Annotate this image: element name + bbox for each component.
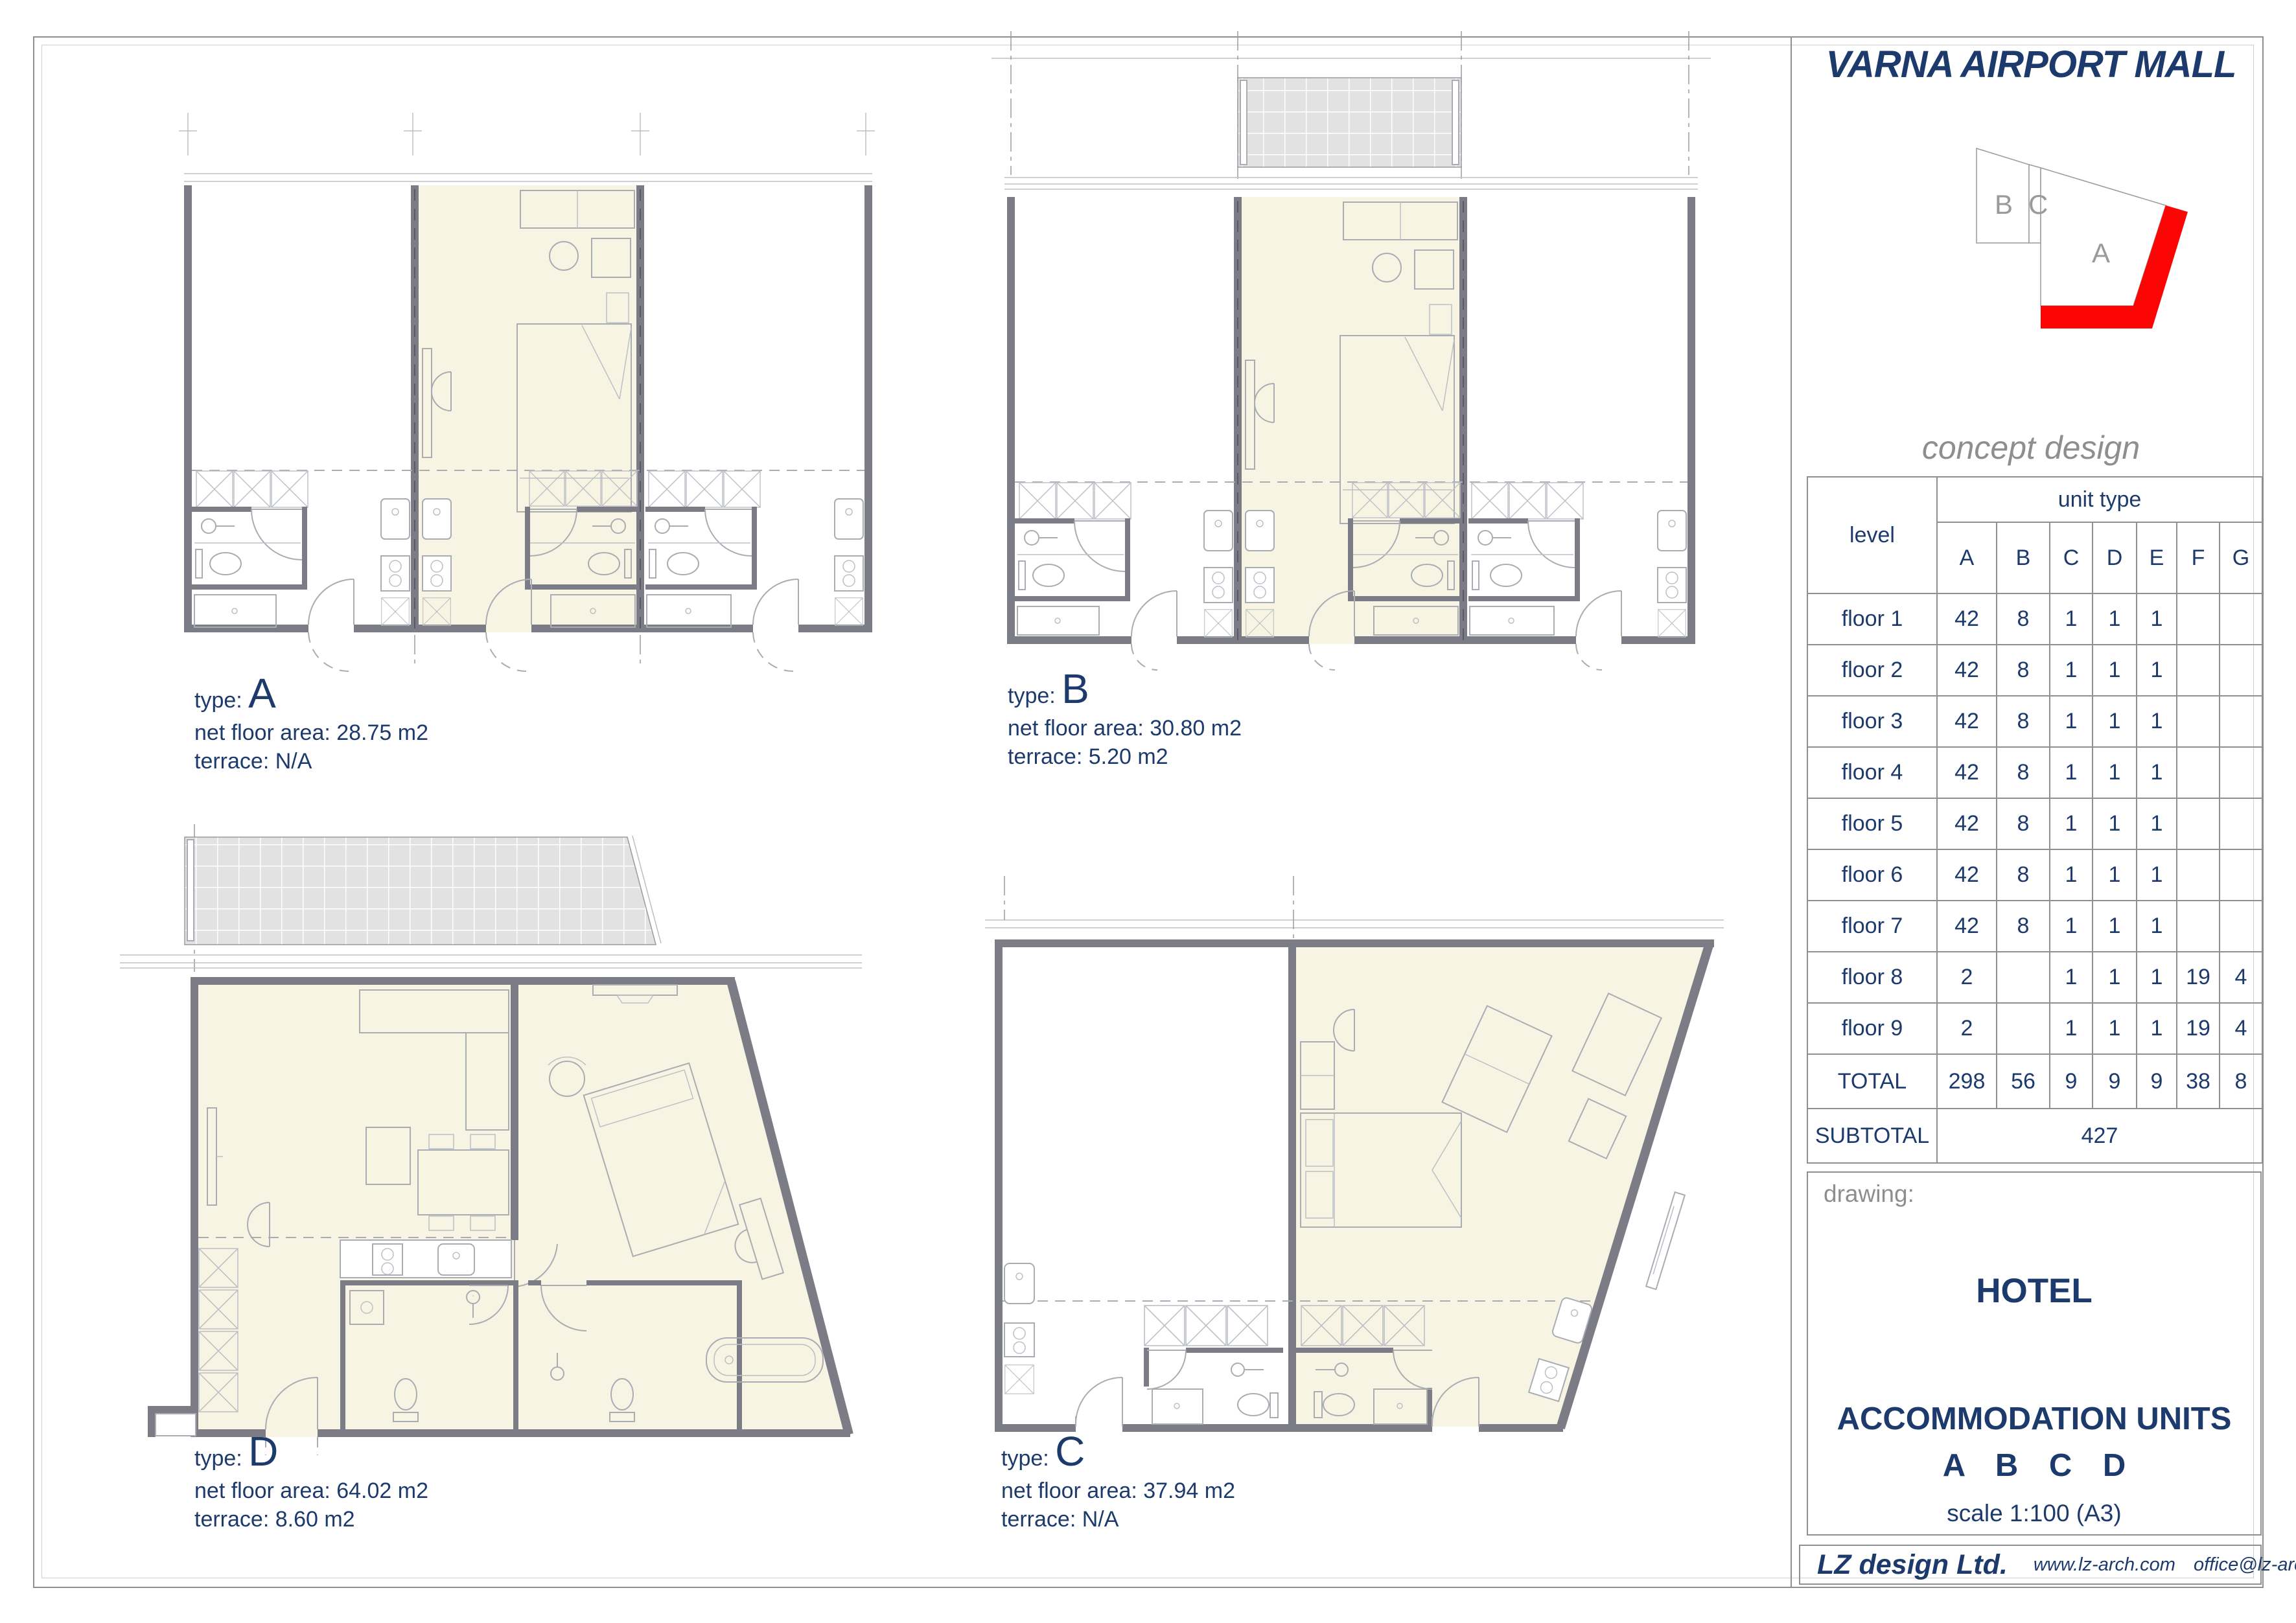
terrace-line: terrace: 8.60 m2 xyxy=(194,1505,428,1534)
count-cell: 19 xyxy=(2177,1003,2220,1054)
count-cell: 1 xyxy=(2137,952,2177,1003)
table-row: floor 2428111 xyxy=(1807,645,2262,696)
count-cell: 2 xyxy=(1937,1003,1997,1054)
unit-table-body: floor 1428111floor 2428111floor 3428111f… xyxy=(1807,593,2262,1163)
column-header: E xyxy=(2137,522,2177,593)
subtotal-row: SUBTOTAL427 xyxy=(1807,1109,2262,1163)
level-cell: floor 1 xyxy=(1807,593,1937,645)
grid-ticks xyxy=(179,113,875,155)
count-cell xyxy=(2220,901,2262,952)
count-cell xyxy=(2220,798,2262,849)
count-cell: 1 xyxy=(2093,1003,2137,1054)
count-cell xyxy=(2220,593,2262,645)
type-value: D xyxy=(248,1428,278,1475)
count-cell: 42 xyxy=(1937,849,1997,901)
table-header-row: level unit type xyxy=(1807,477,2262,522)
area-line: net floor area: 37.94 m2 xyxy=(1001,1477,1235,1505)
count-cell: 1 xyxy=(2137,593,2177,645)
count-cell xyxy=(2177,645,2220,696)
count-cell: 1 xyxy=(2137,747,2177,798)
right-unit xyxy=(645,471,863,627)
drawing-sheet: type: A net floor area: 28.75 m2 terrace… xyxy=(0,0,2296,1623)
count-cell: 1 xyxy=(2137,798,2177,849)
left-unit xyxy=(1015,483,1233,637)
company-website[interactable]: www.lz-arch.com xyxy=(2034,1554,2175,1575)
count-cell: 8 xyxy=(1997,901,2050,952)
count-cell xyxy=(2220,849,2262,901)
count-cell: 1 xyxy=(2050,849,2093,901)
count-cell xyxy=(2220,696,2262,747)
area-line: net floor area: 30.80 m2 xyxy=(1008,714,1242,742)
terrace xyxy=(1238,78,1461,167)
level-cell: floor 2 xyxy=(1807,645,1937,696)
count-cell: 8 xyxy=(1997,593,2050,645)
count-cell xyxy=(1997,952,2050,1003)
drawing-title-line1: HOTEL xyxy=(1808,1271,2260,1311)
count-cell xyxy=(2177,593,2220,645)
area-line: net floor area: 64.02 m2 xyxy=(194,1477,428,1505)
terrace xyxy=(185,836,661,945)
count-cell: 8 xyxy=(1997,645,2050,696)
corridor-lines xyxy=(985,920,1724,928)
count-cell xyxy=(2177,798,2220,849)
level-cell: floor 6 xyxy=(1807,849,1937,901)
count-cell: 8 xyxy=(1997,849,2050,901)
count-cell: 1 xyxy=(2137,696,2177,747)
floor-plan-c xyxy=(979,875,1730,1445)
key-plan-label-a: A xyxy=(2092,238,2110,268)
level-cell: floor 8 xyxy=(1807,952,1937,1003)
unit-annotation-c: type: C net floor area: 37.94 m2 terrace… xyxy=(1001,1433,1235,1534)
floor-plan-d xyxy=(110,823,868,1458)
corridor-lines xyxy=(184,174,872,181)
table-row: floor 82111194 xyxy=(1807,952,2262,1003)
count-cell xyxy=(2177,849,2220,901)
corridor-lines xyxy=(1004,178,1698,189)
count-cell: 8 xyxy=(1997,747,2050,798)
count-cell: 42 xyxy=(1937,798,1997,849)
table-row: floor 5428111 xyxy=(1807,798,2262,849)
count-cell: 1 xyxy=(2093,849,2137,901)
floor-plan-a xyxy=(162,110,894,680)
kitchen xyxy=(340,1240,511,1278)
type-label: type: xyxy=(1008,684,1056,708)
count-cell: 1 xyxy=(2050,696,2093,747)
concept-design-label: concept design xyxy=(1800,429,2262,466)
count-cell: 4 xyxy=(2220,952,2262,1003)
count-cell: 56 xyxy=(1997,1054,2050,1109)
count-cell: 298 xyxy=(1937,1054,1997,1109)
count-cell: 1 xyxy=(2050,901,2093,952)
count-cell: 42 xyxy=(1937,593,1997,645)
drawing-scale: scale 1:100 (A3) xyxy=(1808,1500,2260,1527)
count-cell: 1 xyxy=(2093,952,2137,1003)
key-plan: B C A xyxy=(1970,133,2203,340)
unit-type-header: unit type xyxy=(1937,477,2262,522)
count-cell xyxy=(2177,747,2220,798)
count-cell: 1 xyxy=(2093,645,2137,696)
level-cell: floor 7 xyxy=(1807,901,1937,952)
level-cell: floor 4 xyxy=(1807,747,1937,798)
count-cell: 8 xyxy=(1997,798,2050,849)
type-label: type: xyxy=(194,1446,242,1471)
count-cell: 8 xyxy=(1997,696,2050,747)
type-value: C xyxy=(1055,1428,1085,1475)
column-header: C xyxy=(2050,522,2093,593)
subtotal-label: SUBTOTAL xyxy=(1807,1109,1937,1163)
terrace-line: terrace: N/A xyxy=(194,747,428,776)
table-row: floor 3428111 xyxy=(1807,696,2262,747)
count-cell: 9 xyxy=(2050,1054,2093,1109)
table-row: floor 6428111 xyxy=(1807,849,2262,901)
column-header: D xyxy=(2093,522,2137,593)
count-cell: 42 xyxy=(1937,645,1997,696)
count-cell: 4 xyxy=(2220,1003,2262,1054)
count-cell: 42 xyxy=(1937,747,1997,798)
key-plan-label-b: B xyxy=(1995,189,2013,220)
floor-plan-b xyxy=(985,26,1717,680)
count-cell: 9 xyxy=(2137,1054,2177,1109)
type-value: A xyxy=(248,670,276,717)
table-row: floor 7428111 xyxy=(1807,901,2262,952)
title-column-divider xyxy=(1791,36,1792,1587)
level-cell: floor 9 xyxy=(1807,1003,1937,1054)
count-cell xyxy=(2177,901,2220,952)
corridor-lines xyxy=(120,955,862,968)
level-header: level xyxy=(1807,477,1937,593)
highlighted-unit xyxy=(1296,947,1711,1427)
level-cell: floor 5 xyxy=(1807,798,1937,849)
drawing-title-block: drawing: HOTEL ACCOMMODATION UNITS A B C… xyxy=(1807,1171,2262,1536)
count-cell: 1 xyxy=(2093,901,2137,952)
count-cell: 1 xyxy=(2137,901,2177,952)
subtotal-value: 427 xyxy=(1937,1109,2262,1163)
unit-count-table: level unit type ABCDEFG floor 1428111flo… xyxy=(1807,476,2263,1164)
table-row: floor 1428111 xyxy=(1807,593,2262,645)
left-unit xyxy=(1004,1263,1283,1433)
table-row: floor 92111194 xyxy=(1807,1003,2262,1054)
unit-annotation-b: type: B net floor area: 30.80 m2 terrace… xyxy=(1008,671,1242,771)
level-cell: TOTAL xyxy=(1807,1054,1937,1109)
count-cell xyxy=(2177,696,2220,747)
company-name: LZ design Ltd. xyxy=(1817,1549,2008,1581)
count-cell: 1 xyxy=(2137,1003,2177,1054)
type-value: B xyxy=(1061,665,1089,712)
count-cell: 1 xyxy=(2050,645,2093,696)
area-line: net floor area: 28.75 m2 xyxy=(194,719,428,747)
column-header: A xyxy=(1937,522,1997,593)
drawing-title-line3: A B C D xyxy=(1808,1447,2260,1484)
count-cell: 1 xyxy=(2093,593,2137,645)
count-cell: 1 xyxy=(2050,1003,2093,1054)
table-row: floor 4428111 xyxy=(1807,747,2262,798)
count-cell: 19 xyxy=(2177,952,2220,1003)
count-cell: 2 xyxy=(1937,952,1997,1003)
count-cell: 1 xyxy=(2093,798,2137,849)
entry-mat xyxy=(156,1414,196,1436)
level-cell: floor 3 xyxy=(1807,696,1937,747)
count-cell: 1 xyxy=(2093,696,2137,747)
table-row: TOTAL29856999388 xyxy=(1807,1054,2262,1109)
type-label: type: xyxy=(1001,1446,1049,1471)
count-cell: 1 xyxy=(2137,645,2177,696)
count-cell xyxy=(2220,645,2262,696)
terrace-line: terrace: N/A xyxy=(1001,1505,1235,1534)
count-cell: 9 xyxy=(2093,1054,2137,1109)
right-unit xyxy=(1468,483,1686,637)
unit-annotation-d: type: D net floor area: 64.02 m2 terrace… xyxy=(194,1433,428,1534)
count-cell: 1 xyxy=(2050,952,2093,1003)
count-cell: 1 xyxy=(2050,798,2093,849)
column-header: F xyxy=(2177,522,2220,593)
count-cell xyxy=(2220,747,2262,798)
key-plan-label-c: C xyxy=(2028,189,2048,220)
count-cell: 42 xyxy=(1937,696,1997,747)
count-cell: 38 xyxy=(2177,1054,2220,1109)
left-unit xyxy=(192,471,410,627)
drawing-title-line2: ACCOMMODATION UNITS xyxy=(1808,1401,2260,1437)
count-cell: 1 xyxy=(2093,747,2137,798)
count-cell: 42 xyxy=(1937,901,1997,952)
count-cell: 1 xyxy=(2137,849,2177,901)
column-header: G xyxy=(2220,522,2262,593)
footer-block: LZ design Ltd. www.lz-arch.comoffice@lz-… xyxy=(1799,1545,2262,1585)
count-cell xyxy=(1997,1003,2050,1054)
terrace-line: terrace: 5.20 m2 xyxy=(1008,742,1242,771)
count-cell: 1 xyxy=(2050,593,2093,645)
drawing-label: drawing: xyxy=(1824,1180,1914,1208)
count-cell: 8 xyxy=(2220,1054,2262,1109)
company-email[interactable]: office@lz-arch.com xyxy=(2194,1554,2296,1575)
project-title: VARNA AIRPORT MALL xyxy=(1800,43,2262,86)
count-cell: 1 xyxy=(2050,747,2093,798)
column-header: B xyxy=(1997,522,2050,593)
type-label: type: xyxy=(194,688,242,713)
unit-annotation-a: type: A net floor area: 28.75 m2 terrace… xyxy=(194,675,428,776)
